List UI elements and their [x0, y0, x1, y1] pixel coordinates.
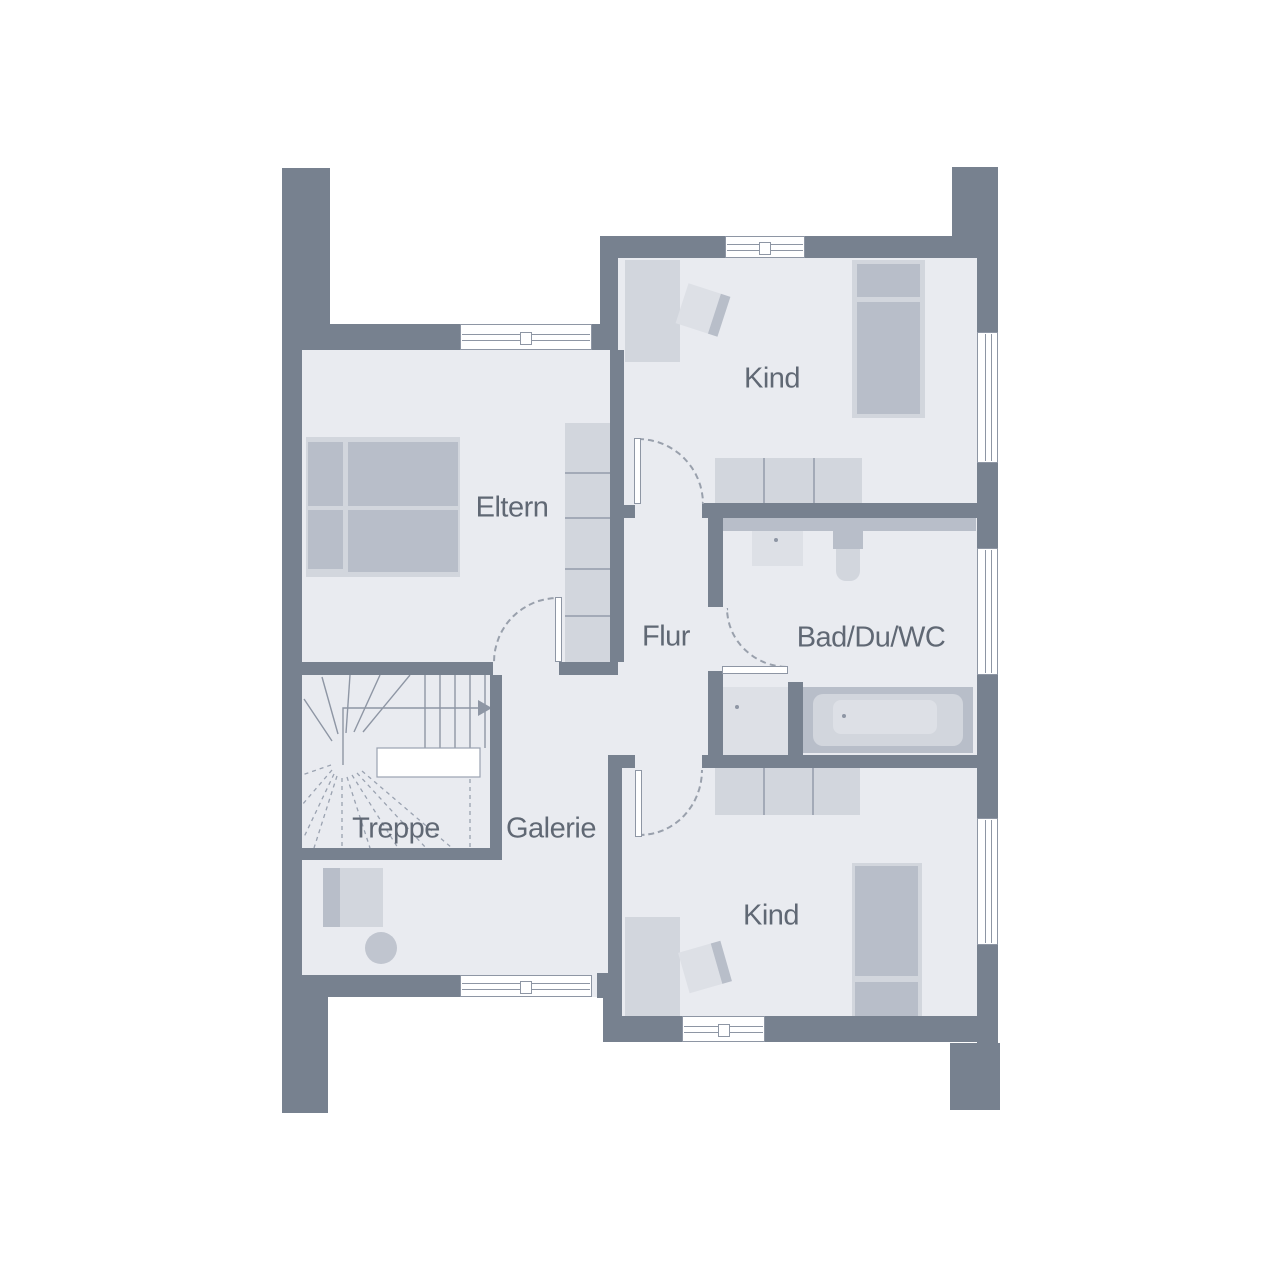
wall-bad-left: [708, 671, 723, 757]
window: [977, 548, 998, 675]
wall-eltern-bottom: [282, 662, 493, 675]
faucet-dot: [774, 538, 778, 542]
wall-bad-left: [708, 515, 723, 607]
wardrobe-divider: [565, 517, 614, 519]
wardrobe-divider: [565, 472, 614, 474]
wall-door-jamb: [608, 755, 635, 768]
lounge-chair: [340, 868, 383, 927]
door-leaf: [635, 770, 642, 837]
wall-kind-bottom: [603, 1016, 682, 1042]
sideboard: [715, 458, 862, 505]
wall-eltern-top: [330, 324, 460, 350]
bed-mattress: [857, 302, 920, 414]
door-leaf: [634, 438, 641, 504]
bed-pillow: [855, 982, 918, 1016]
wall-shower-divider: [788, 682, 803, 757]
wall-stairwell-bottom: [302, 848, 502, 860]
wall-kind-top-left: [600, 236, 618, 350]
floor-plan: Kind Eltern Flur Bad/Du/WC Treppe Galeri…: [0, 0, 1280, 1280]
room-label-eltern: Eltern: [476, 494, 549, 523]
wall-galerie-bottom: [282, 975, 460, 997]
wall-stairwell: [490, 675, 502, 860]
window: [682, 1016, 765, 1042]
sideboard-divider: [813, 458, 815, 505]
window: [725, 236, 805, 258]
window: [460, 324, 592, 350]
sideboard-divider: [763, 458, 765, 505]
lounge-chair-back: [323, 868, 340, 927]
room-label-galerie: Galerie: [506, 815, 596, 844]
sideboard-divider: [763, 768, 765, 815]
wall-door-jamb: [622, 505, 635, 518]
sideboard-divider: [812, 768, 814, 815]
stool: [365, 932, 397, 964]
bed-mattress: [348, 442, 458, 506]
wall-kind-top: [805, 236, 977, 258]
wardrobe-divider: [565, 615, 614, 617]
wall-pillar-bottom-left: [282, 997, 328, 1113]
bathtub-drain-dot: [842, 714, 846, 718]
wall-right: [977, 238, 998, 332]
toilet-tank: [833, 531, 863, 549]
room-label-kind-bottom: Kind: [743, 902, 799, 931]
wall-kind-bottom: [765, 1016, 977, 1042]
door-leaf: [722, 666, 788, 674]
bed-mattress: [348, 510, 458, 572]
wall-bad-bottom: [702, 755, 977, 768]
wall-galerie-kind: [603, 996, 622, 1018]
shower-tray: [722, 687, 788, 755]
wardrobe: [565, 423, 614, 662]
wall-pillar-top-right: [952, 167, 998, 238]
bed-pillow: [308, 510, 343, 569]
wall-kind-bad: [702, 503, 977, 518]
bed-mattress: [855, 866, 918, 976]
bed-pillow: [308, 442, 343, 506]
washbasin: [752, 531, 803, 566]
window: [977, 818, 998, 945]
toilet-bowl: [836, 549, 860, 581]
window: [460, 975, 592, 997]
shower-drain-dot: [735, 705, 739, 709]
wall-pillar-bottom-right: [950, 1043, 1000, 1110]
wall-eltern-bottom: [559, 662, 618, 675]
desk: [625, 260, 680, 362]
wall-right: [977, 675, 998, 818]
sideboard: [715, 768, 860, 815]
room-label-treppe: Treppe: [352, 815, 440, 844]
wall-right: [977, 463, 998, 548]
wall-pillar-top-left: [282, 168, 330, 350]
wall-corner: [597, 973, 622, 998]
wardrobe-divider: [565, 568, 614, 570]
bathtub-basin: [833, 700, 937, 734]
vanity-counter: [723, 517, 976, 531]
door-leaf: [555, 597, 562, 662]
room-label-bad-du-wc: Bad/Du/WC: [797, 624, 946, 653]
wall-kind-top: [618, 236, 725, 258]
room-label-kind-top: Kind: [744, 365, 800, 394]
wall-galerie-kind: [608, 768, 622, 998]
wall-right: [977, 945, 998, 1043]
desk: [625, 917, 680, 1018]
bed-pillow: [857, 264, 920, 297]
window: [977, 332, 998, 463]
room-label-flur: Flur: [642, 623, 690, 652]
